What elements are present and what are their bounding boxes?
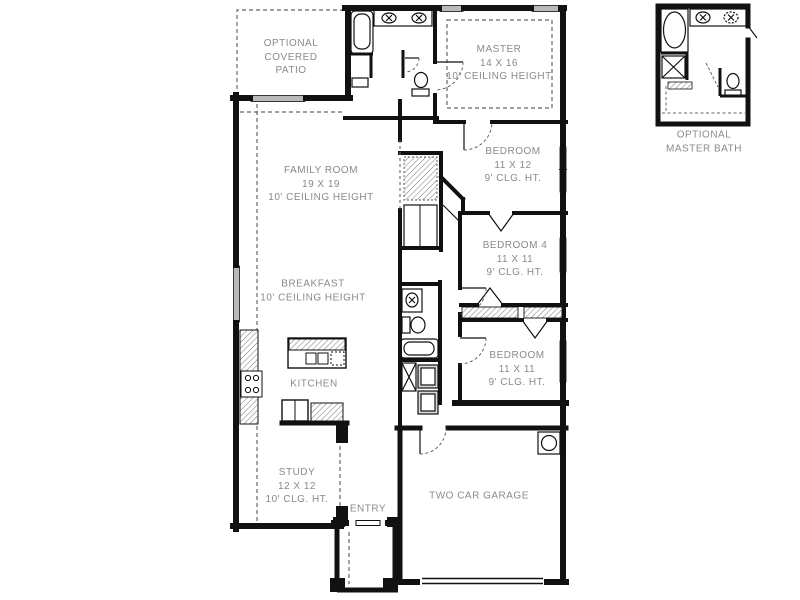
shower-icon: [662, 56, 685, 78]
linen-closet-icon: [404, 157, 437, 200]
double-vanity-icon: [690, 9, 746, 26]
room-label-kitchen: KITCHEN: [290, 377, 337, 391]
bedroom-closet-shelves: [462, 307, 562, 318]
room-label-bedroom-3: BEDROOM 11 X 11 9' CLG. HT.: [489, 349, 546, 390]
water-heater-icon: [538, 432, 560, 454]
room-label-bedroom-4: BEDROOM 4 11 X 11 9' CLG. HT.: [483, 239, 548, 280]
room-label-optional-master-bath: OPTIONAL MASTER BATH: [666, 129, 742, 156]
bath-bench: [352, 78, 368, 87]
refrigerator-icon: [282, 400, 308, 421]
linen-shelves-icon: [402, 363, 416, 391]
dryer-icon: [418, 391, 438, 414]
porch-column: [383, 578, 398, 592]
room-label-optional-covered-patio: OPTIONAL COVERED PATIO: [264, 37, 319, 78]
pantry-counter: [311, 403, 343, 421]
porch-column: [330, 578, 345, 592]
utility-fixtures: [402, 363, 438, 414]
garage-door: [420, 576, 544, 588]
toilet-icon: [412, 73, 429, 97]
kitchen-island-icon: [288, 338, 346, 368]
inset-door-leaf: [748, 26, 757, 38]
room-label-bedroom-2: BEDROOM 11 X 12 9' CLG. HT.: [485, 145, 542, 186]
window-master-2: [531, 4, 561, 13]
inset-door-swing: [706, 63, 718, 87]
window-breakfast: [232, 265, 241, 323]
sink-icon: [402, 289, 422, 312]
floor-plan-canvas: [0, 0, 800, 600]
room-label-master-bedroom: MASTER 14 X 16 10' CEILING HEIGHT: [446, 43, 551, 84]
room-label-entry: ENTRY: [350, 502, 386, 516]
wall-stub: [336, 421, 348, 443]
room-label-study: STUDY 12 X 12 10' CLG. HT.: [266, 466, 329, 507]
window-patio: [250, 94, 306, 103]
room-label-family-room: FAMILY ROOM 19 X 19 10' CEILING HEIGHT: [268, 164, 373, 205]
hall-closets: [404, 157, 437, 247]
window-master-1: [439, 4, 464, 13]
hall-bath-fixtures: [401, 289, 438, 358]
master-bath-fixtures: [348, 10, 432, 96]
washer-icon: [418, 365, 438, 388]
room-label-two-car-garage: TWO CAR GARAGE: [429, 489, 529, 503]
room-label-breakfast: BREAKFAST 10' CEILING HEIGHT: [260, 278, 365, 305]
double-vanity-icon: [374, 10, 432, 26]
optional-master-bath-inset: [658, 6, 757, 124]
wall-stub: [336, 506, 348, 526]
range-cooktop-icon: [241, 371, 262, 397]
bathtub-icon: [661, 9, 688, 52]
toilet-icon: [402, 317, 425, 333]
floor-plan-page: OPTIONAL COVERED PATIO MASTER 14 X 16 10…: [0, 0, 800, 600]
bathtub-icon: [401, 339, 438, 358]
garage-fixtures: [538, 432, 560, 454]
front-door: [349, 519, 385, 527]
toilet-icon: [725, 74, 741, 97]
